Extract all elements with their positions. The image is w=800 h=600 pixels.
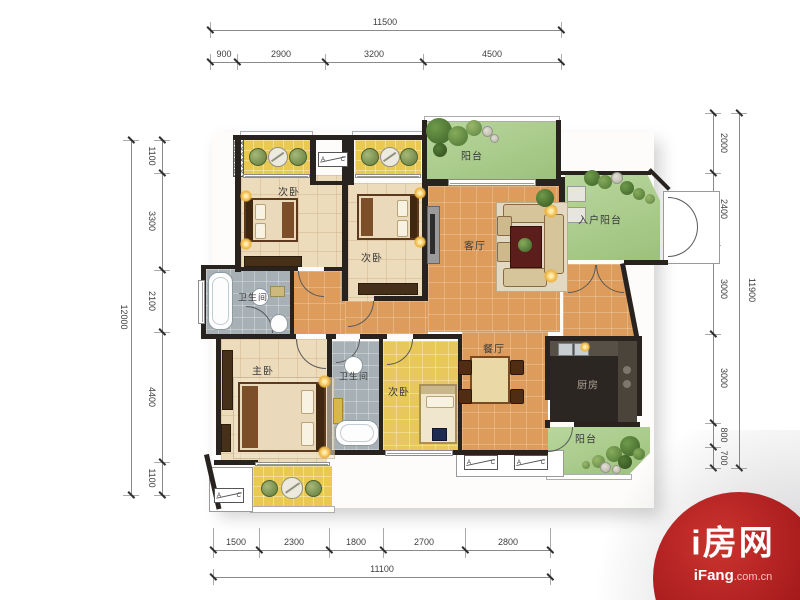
window-bedroom-c-south — [385, 450, 453, 456]
plant-pot-icon — [261, 480, 278, 497]
stove-burner-icon — [623, 380, 631, 388]
label-dining: 餐厅 — [483, 341, 505, 356]
ifang-logo-suffix: .com.cn — [734, 571, 773, 583]
plant-pot-icon — [249, 148, 267, 166]
master-dresser — [222, 350, 233, 410]
label-bedroom-a: 次卧 — [278, 184, 300, 199]
bay-master-sill — [250, 506, 335, 513]
plant-icon — [598, 175, 612, 189]
dim-right-total: 11900 — [747, 278, 757, 302]
window-bath-a — [198, 280, 205, 324]
decor-plate-icon — [268, 147, 288, 167]
label-bedroom-c: 次卧 — [388, 384, 410, 399]
dining-chair — [510, 360, 524, 375]
ac-unit-top: AC — [318, 152, 348, 167]
label-bedroom-b: 次卧 — [361, 250, 383, 265]
ifang-logo-site: iFang — [694, 567, 734, 584]
stove-burner-icon — [623, 366, 631, 374]
dining-chair — [458, 389, 472, 404]
label-kitchen: 厨房 — [577, 377, 599, 392]
lamp-icon — [414, 187, 426, 199]
lamp-icon — [544, 269, 558, 283]
lamp-icon — [240, 190, 252, 202]
corner-plant-icon — [536, 189, 554, 207]
tv-screen — [430, 214, 435, 254]
bath-a-cabinet — [270, 286, 285, 297]
label-living: 客厅 — [464, 238, 486, 253]
table-plant-icon — [518, 238, 532, 252]
wardrobe-bedroom-b — [358, 283, 418, 295]
dining-chair — [510, 389, 524, 404]
decor-plate-icon — [281, 477, 303, 499]
window-bay-master-inner — [255, 462, 330, 466]
lamp-icon — [318, 375, 331, 388]
plant-icon — [433, 143, 447, 157]
master-cabinet — [221, 424, 231, 452]
label-entry-balcony: 入户阳台 — [578, 212, 622, 227]
lamp-icon — [414, 236, 426, 248]
ac-unit-south-1: AC — [464, 455, 498, 470]
plant-pot-icon — [361, 148, 379, 166]
floorplan-screenshot: 11500 900 2900 3200 4500 1500 2300 1800 … — [0, 0, 800, 600]
plant-icon — [645, 194, 655, 204]
stone-icon — [490, 134, 499, 143]
bed-bedroom-a — [244, 198, 298, 242]
ifang-logo-brand: i房网 — [691, 516, 774, 565]
dim-bottom-total: 11100 — [370, 564, 394, 574]
window-bay-a-inner — [243, 174, 310, 178]
dining-chair — [458, 360, 472, 375]
ac-unit-south-2: AC — [514, 455, 548, 470]
wardrobe-bedroom-a — [244, 256, 302, 267]
plant-icon — [633, 188, 645, 200]
plant-pot-icon — [289, 148, 307, 166]
plant-icon — [448, 126, 468, 146]
nightstand-bedroom-c — [432, 428, 447, 441]
ac-unit-bottom-left: AC — [214, 488, 244, 503]
toilet-a — [270, 314, 288, 333]
dining-table — [470, 356, 510, 404]
sofa-right — [544, 214, 564, 274]
bed-bedroom-b — [357, 194, 419, 240]
label-bath-a: 卫生间 — [238, 291, 268, 304]
label-balcony-top: 阳台 — [461, 148, 483, 163]
kitchen-light-icon — [580, 342, 590, 352]
bathtub-a — [208, 272, 233, 330]
window-living-balcony — [448, 179, 536, 186]
kitchen-sink — [558, 343, 573, 356]
sofa-bottom — [503, 268, 547, 287]
bathtub-b — [335, 420, 379, 446]
bed-master — [238, 382, 326, 452]
decor-plate-icon — [380, 147, 400, 167]
label-bath-b: 卫生间 — [339, 370, 369, 383]
plant-pot-icon — [400, 148, 418, 166]
lamp-icon — [318, 446, 331, 459]
label-master: 主卧 — [252, 363, 274, 378]
plant-icon — [466, 120, 482, 136]
dim-top-total: 11500 — [373, 17, 397, 27]
lamp-icon — [240, 238, 252, 250]
plant-icon — [620, 181, 634, 195]
entry-planter-1 — [567, 186, 586, 202]
dim-left-total: 12000 — [119, 304, 129, 329]
window-bay-b-inner — [355, 174, 421, 178]
plant-pot-icon — [305, 480, 322, 497]
